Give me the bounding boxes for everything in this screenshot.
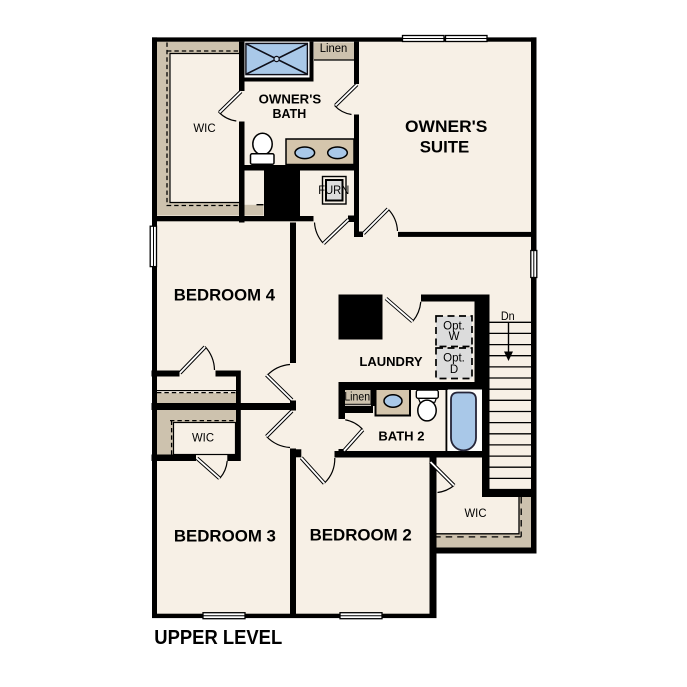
svg-text:Dn: Dn [501,311,515,323]
svg-text:OWNER'S: OWNER'S [259,92,322,107]
svg-text:WIC: WIC [192,433,214,445]
svg-text:BEDROOM 3: BEDROOM 3 [174,526,276,545]
svg-text:OWNER'S: OWNER'S [405,117,487,136]
svg-text:SUITE: SUITE [420,137,470,156]
svg-text:D: D [450,364,458,376]
svg-text:W: W [449,331,460,343]
svg-text:Linen: Linen [320,43,348,55]
svg-text:FURN: FURN [318,185,349,197]
svg-text:Linen: Linen [344,392,370,404]
svg-text:WIC: WIC [193,123,215,135]
svg-text:BEDROOM 4: BEDROOM 4 [174,286,276,305]
svg-text:WIC: WIC [465,508,487,520]
svg-text:BATH 2: BATH 2 [378,429,424,444]
svg-text:LAUNDRY: LAUNDRY [359,354,422,369]
svg-text:BATH: BATH [273,106,307,121]
svg-text:BEDROOM 2: BEDROOM 2 [310,526,412,545]
svg-text:Opt.: Opt. [443,352,465,364]
svg-text:UPPER LEVEL: UPPER LEVEL [154,627,282,649]
